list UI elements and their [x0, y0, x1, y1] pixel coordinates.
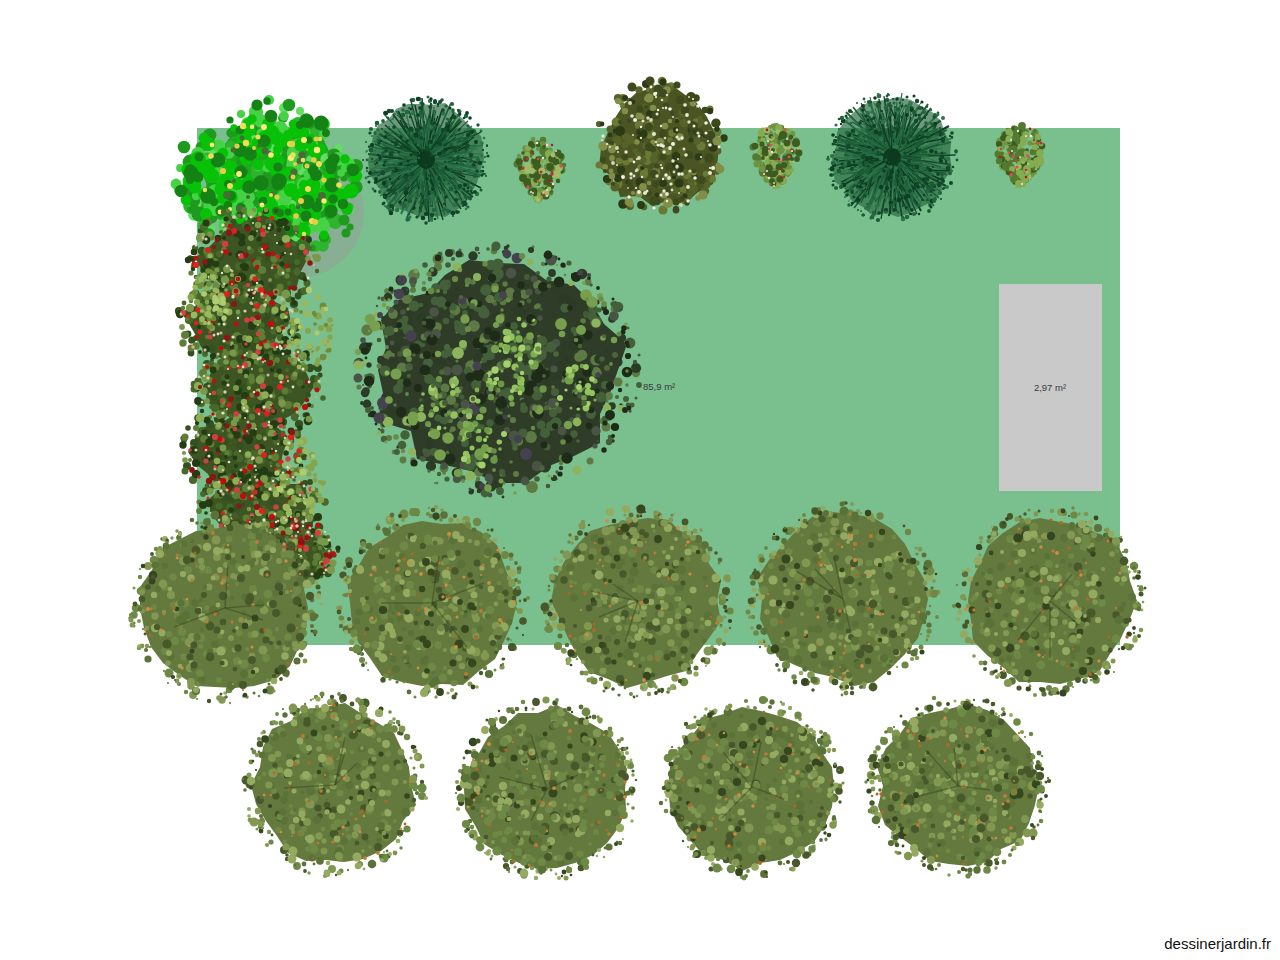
svg-text:dessinerjardin.fr: dessinerjardin.fr [1164, 935, 1271, 952]
svg-text:2,97 m²: 2,97 m² [1034, 382, 1066, 393]
svg-text:85,9 m²: 85,9 m² [643, 381, 675, 392]
